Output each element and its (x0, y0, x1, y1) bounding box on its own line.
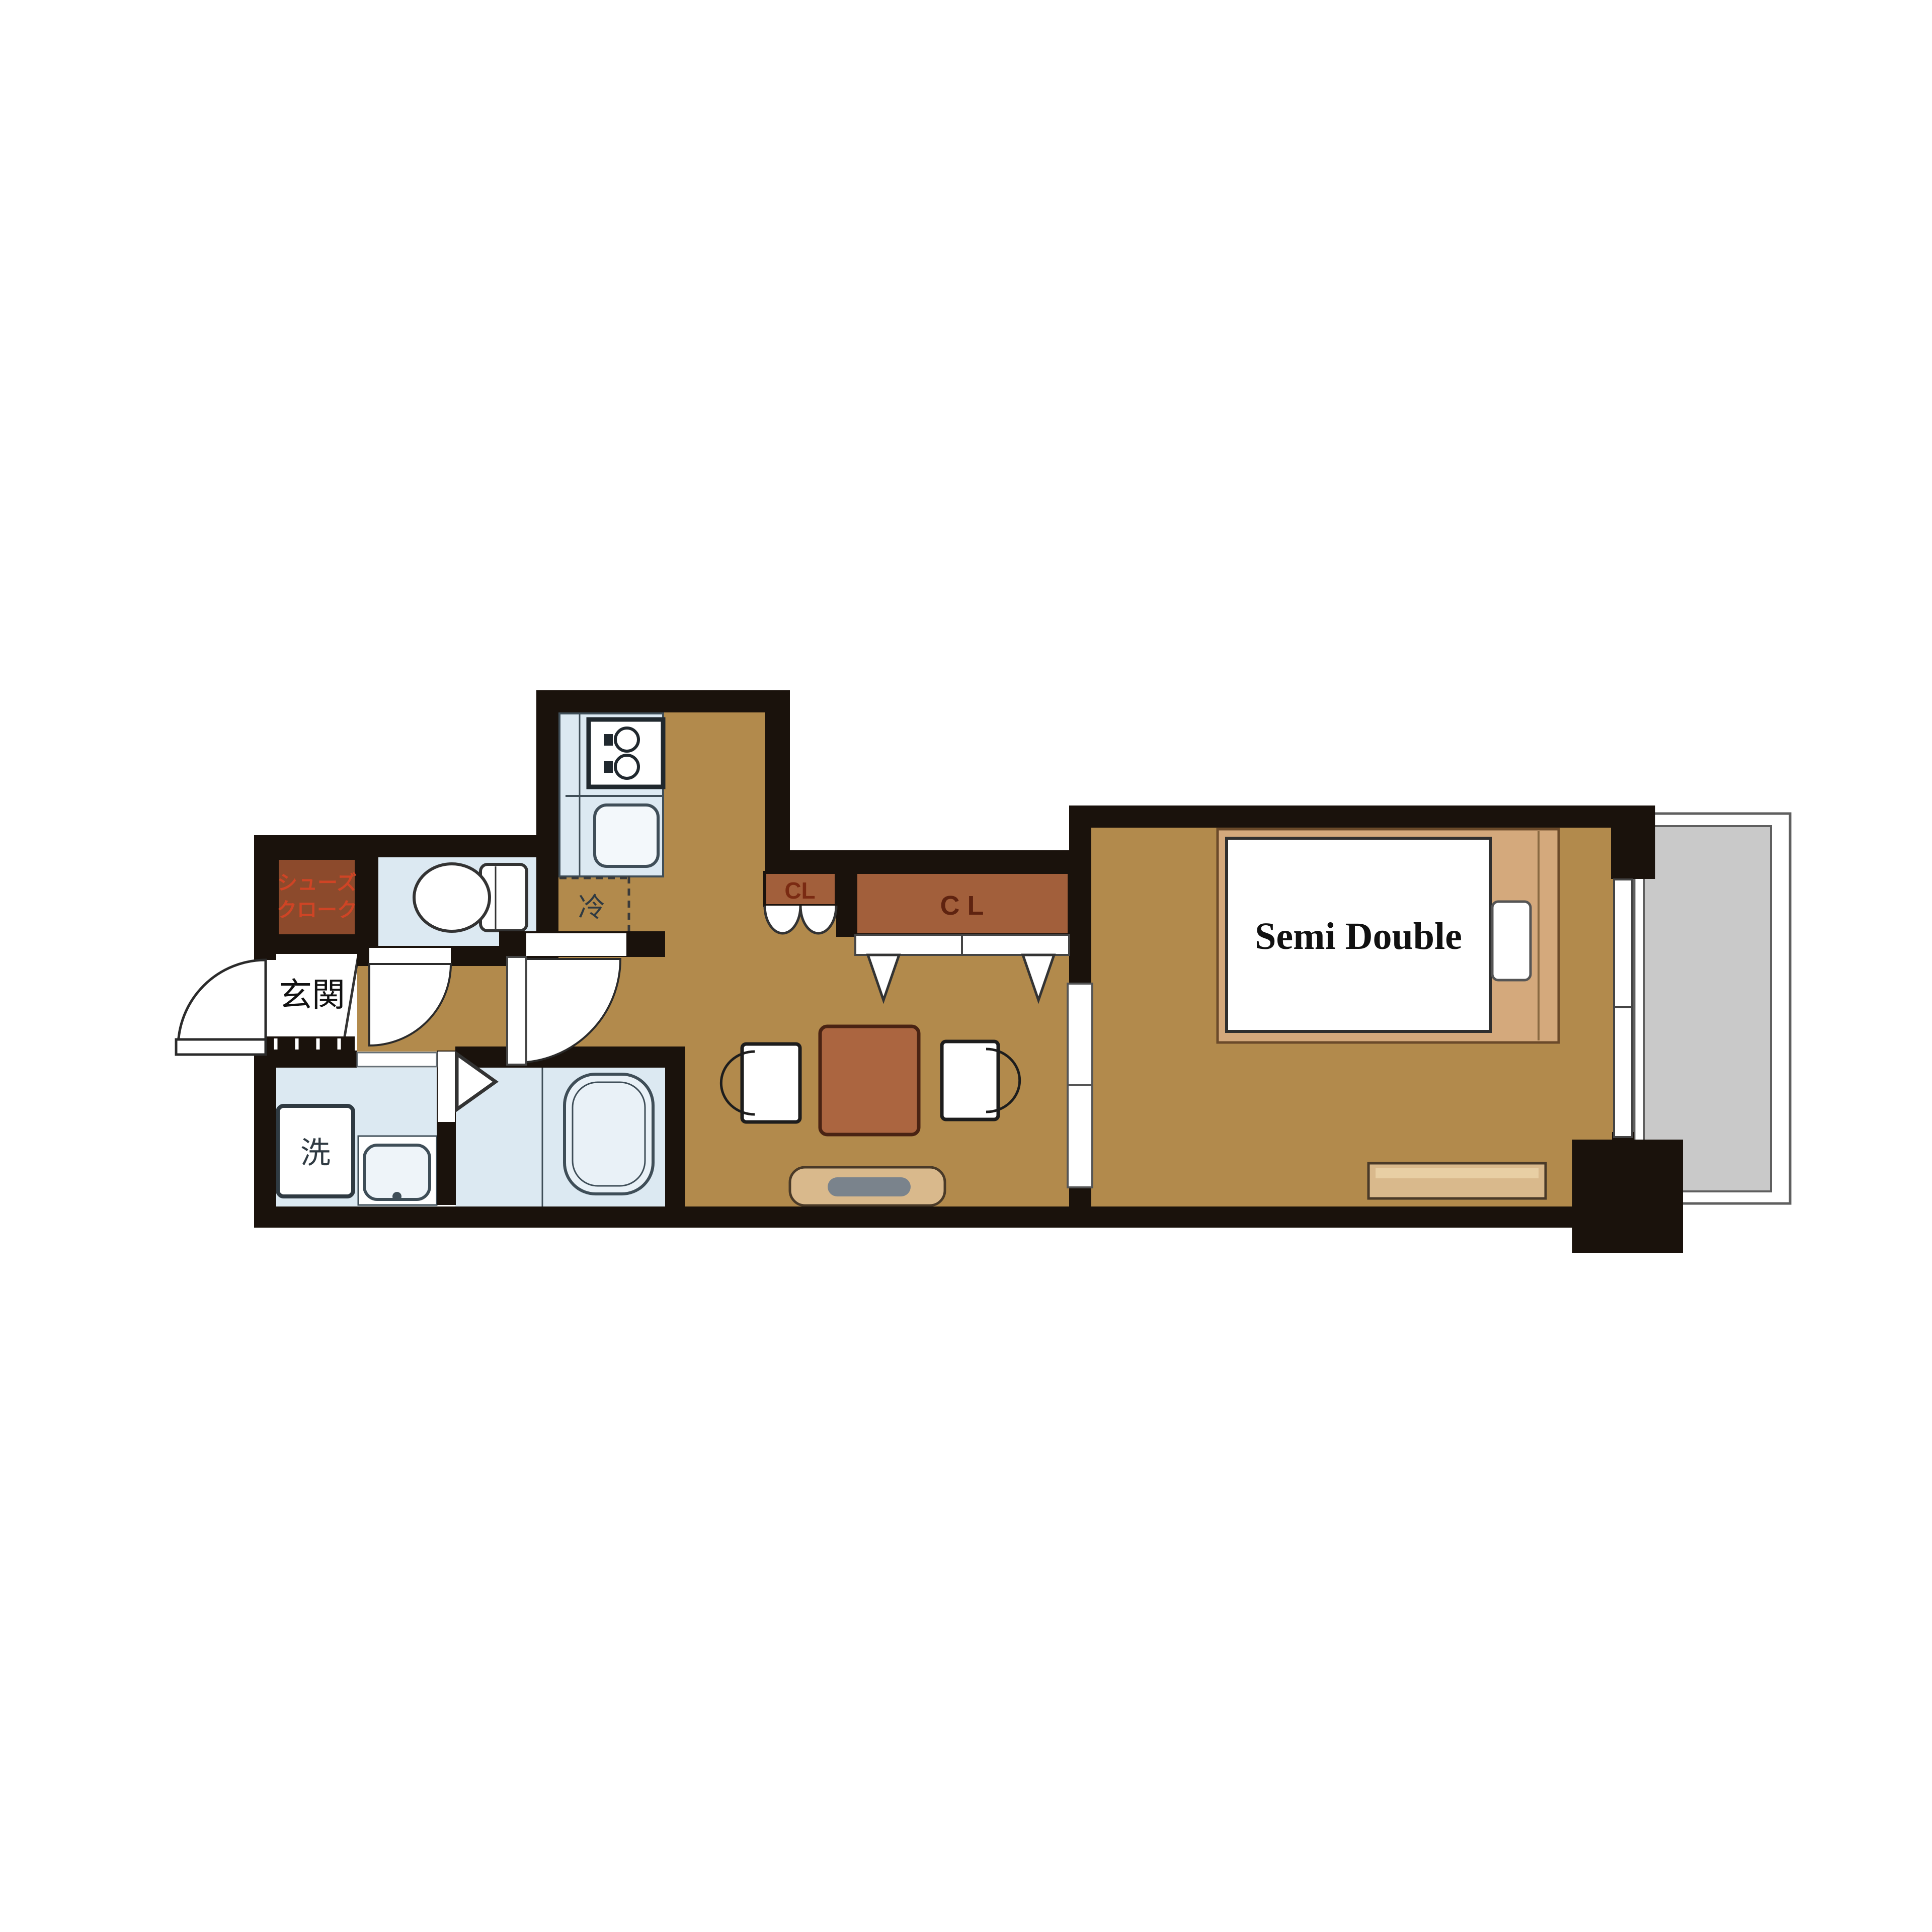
pillar (1572, 1140, 1683, 1253)
burner-knob (604, 761, 613, 773)
bed-pillow (1492, 902, 1531, 980)
shoe-closet-label-line2: クローク (277, 899, 357, 921)
bedroom-cabinet-highlight (1376, 1168, 1539, 1178)
bed-label: Semi Double (1255, 915, 1462, 957)
wall (1069, 1187, 1091, 1228)
toilet-bowl (414, 864, 490, 931)
wall (455, 1046, 684, 1068)
wall (254, 1051, 357, 1068)
balcony-deck (1644, 826, 1771, 1191)
toilet-fixture (414, 864, 527, 931)
entry-door-leaf (176, 1039, 266, 1055)
chair-left (742, 1044, 800, 1122)
washer-label: 洗 (300, 1136, 331, 1170)
wall (765, 850, 1091, 872)
fridge-space-label: 冷 (578, 893, 605, 923)
closet-large-label: C L (940, 891, 984, 921)
wall (765, 690, 790, 872)
wall (665, 1046, 685, 1228)
wall (1069, 806, 1091, 984)
living-door-opening (526, 933, 626, 956)
tv (828, 1177, 911, 1196)
wall (536, 690, 790, 712)
floor-plan-drawing: シューズ クローク 玄関 CL C L 冷 洗 Semi Double (0, 0, 1932, 1932)
basin-faucet-dot (392, 1192, 401, 1201)
table (820, 1026, 919, 1135)
shoe-closet-label-line1: シューズ (277, 872, 357, 894)
wall (254, 835, 558, 857)
burner-icon (615, 755, 638, 778)
toilet-door-opening (369, 948, 451, 965)
wash-basin (364, 1145, 430, 1199)
floor-plan-page: シューズ クローク 玄関 CL C L 冷 洗 Semi Double (0, 0, 1932, 1932)
wall (1069, 806, 1634, 828)
wall (836, 872, 857, 937)
living-door-leaf (507, 957, 526, 1065)
kitchen-sink (595, 805, 658, 866)
wall-corner-block (1611, 806, 1655, 879)
shoe-closet (276, 857, 357, 937)
wall (536, 690, 558, 966)
wall (254, 1206, 1634, 1228)
washroom-sliding-door (357, 1053, 437, 1067)
chair-right (942, 1041, 998, 1119)
burner-knob (604, 734, 613, 746)
entrance-label: 玄関 (279, 976, 345, 1013)
burner-icon (615, 728, 638, 751)
closet-small-label: CL (784, 877, 815, 904)
bathroom-door-opening (438, 1052, 455, 1122)
